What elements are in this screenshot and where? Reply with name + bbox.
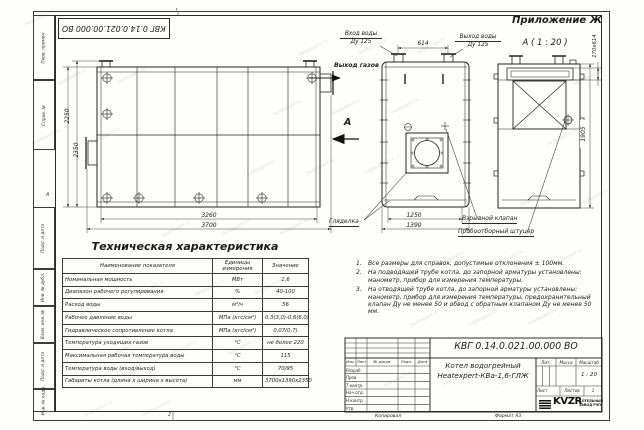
tech-cell: 0,3(3,0)-0,6(6,0) (263, 312, 309, 325)
titleblock-scale-label: Масштаб (576, 360, 602, 365)
tech-cell: МПа (кгс/см²) (213, 312, 263, 325)
note-text: На подводящей трубе котла, до запорной а… (368, 269, 602, 284)
titleblock-mass-label: Масса (556, 360, 576, 365)
margin-cell-vzam-inv: Взам. инв. № (33, 306, 55, 343)
margin-label: Подп. и дата (42, 351, 47, 380)
dim-614: 614 (412, 41, 434, 47)
gas-outlet-label: Выход газов (334, 63, 379, 70)
margin-label: Подп. и дата (42, 223, 47, 252)
note-text: Все размеры для справок, допустимые откл… (368, 260, 564, 267)
zone-mark-top: 1 (175, 9, 178, 15)
titleblock-sheets-value: 1 (584, 388, 602, 393)
tech-row: Гидравлическое сопротивление котлаМПа (к… (63, 324, 309, 337)
margin-label: Взам. инв. № (42, 310, 47, 339)
explosion-valve-label: Взрывной клапан (462, 216, 517, 224)
tech-cell: Диапазон рабочего регулирования (63, 286, 213, 299)
tech-row: Расход водым³/ч56 (63, 299, 309, 312)
tech-cell: 40-100 (263, 286, 309, 299)
notes-list: 1.Все размеры для справок, допустимые от… (356, 260, 602, 318)
tech-table-header-row: Наименование показателя Единицы измерени… (63, 259, 309, 274)
note-number: 1. (356, 260, 365, 267)
water-outlet-label: Выход воды (455, 34, 501, 42)
kvzr-logo-text: KVZR (553, 396, 582, 407)
company-name: КОТЕЛЬНЫЙ ЗАВОД РЭП (579, 399, 603, 407)
doc-number-stamp-text: КВГ 0.14.0.021.00.000 ВО (62, 24, 166, 33)
sheet-background: heatexpert.ruheatexpert.ruheatexpert.ruh… (0, 0, 644, 430)
sampling-nozzle-label: Пробоотборный штуцер (458, 229, 534, 237)
tech-cell: Расход воды (63, 299, 213, 312)
tech-cell: МВт (213, 274, 263, 287)
water-inlet-label: Вход воды (340, 31, 382, 39)
tech-cell: Температура уходящих газов (63, 337, 213, 350)
dim-2350: 2350 (73, 136, 81, 164)
titleblock-row-prov: Пров. (346, 375, 358, 380)
note-item: 1.Все размеры для справок, допустимые от… (356, 260, 602, 267)
tech-col-value: Значение (263, 259, 309, 274)
titleblock-row-razrab: Разраб. (346, 368, 362, 373)
tech-cell: Рабочее давление воды (63, 312, 213, 325)
footer-format-label: Формат А3 (495, 414, 521, 419)
dim-3260: 3260 (189, 213, 229, 220)
margin-label: Справ. № (42, 105, 47, 126)
tech-cell: Габариты котла (длина х ширина х высота) (63, 375, 213, 388)
tech-cell: °С (213, 362, 263, 375)
tech-cell: мм (213, 375, 263, 388)
water-inlet-dn: Ду 125 (340, 39, 382, 45)
tech-cell: 115 (263, 350, 309, 363)
margin-label: Инв. № дубл. (42, 273, 47, 302)
dim-2250: 2250 (64, 102, 72, 130)
note-item: 2.На подводящей трубе котла, до запорной… (356, 269, 602, 284)
titleblock-col-data: Дата (415, 360, 430, 364)
note-text: На отводящей трубе котла, до запорной ар… (368, 286, 602, 316)
tech-cell: 0,07(0,7) (263, 324, 309, 337)
margin-zone-letter: А (46, 193, 49, 199)
tech-row: Температура воды (вход/выход)°С70/95 (63, 362, 309, 375)
margin-label: Перв. примен. (42, 31, 47, 63)
tech-cell: МПа (кгс/см²) (213, 324, 263, 337)
margin-cell-sprav-no: Справ. № (33, 80, 55, 150)
margin-cell-podp-data-2: Подп. и дата (33, 343, 55, 389)
tech-row: Номинальная мощностьМВт1,6 (63, 274, 309, 287)
tech-cell: Гидравлическое сопротивление котла (63, 324, 213, 337)
titleblock-lit-label: Лит. (536, 360, 556, 365)
titleblock-col-izm: Изм. (346, 360, 356, 364)
note-number: 2. (356, 269, 365, 284)
tech-cell: % (213, 286, 263, 299)
tech-col-name: Наименование показателя (63, 259, 213, 274)
margin-cell-podp-data-1: Подп. и дата (33, 207, 55, 269)
kvzr-logo-icon (539, 399, 551, 409)
titleblock-sheet-label: Лист (537, 388, 559, 393)
tech-row: Диапазон рабочего регулирования%40-100 (63, 286, 309, 299)
tech-row: Максимальная рабочая температура воды°С1… (63, 350, 309, 363)
titleblock-col-list: Лист (356, 360, 367, 364)
tech-cell: 56 (263, 299, 309, 312)
titleblock-product-name-2: Heatexpert-КВа-1,6-ГЛЖ (430, 371, 536, 380)
drawing-sheet: { "sheet": { "appendix": "Приложение Ж",… (0, 0, 644, 430)
dim-1905: 1905 (580, 120, 588, 148)
tech-cell: Номинальная мощность (63, 274, 213, 287)
footer-copy-label: Копировал (375, 414, 401, 419)
titleblock-product-name-1: Котел водогрейный (430, 361, 536, 370)
tech-cell: 3700х1390х2350 (263, 375, 309, 388)
note-number: 3. (356, 286, 365, 316)
tech-row: Температура уходящих газов°Сне более 220 (63, 337, 309, 350)
titleblock-scale-value: 1 : 20 (576, 372, 602, 378)
titleblock-row-nachotd: Нач.отд. (346, 390, 364, 395)
titleblock-row-nkontr: Н.контр. (346, 398, 364, 403)
tech-cell: Температура воды (вход/выход) (63, 362, 213, 375)
section-view-title: А ( 1 : 20 ) (515, 39, 575, 48)
tech-col-units: Единицы измерения (213, 259, 263, 274)
tech-cell: м³/ч (213, 299, 263, 312)
tech-table-title: Техническая характеристика (62, 241, 308, 253)
note-item: 3.На отводящей трубе котла, до запорной … (356, 286, 602, 316)
tech-cell: °С (213, 350, 263, 363)
margin-cell-inv-podl: Инв. № подл. (33, 389, 55, 412)
titleblock-row-tkontr: Т.контр. (346, 383, 363, 388)
water-outlet-dn: Ду 125 (455, 42, 501, 48)
appendix-title: Приложение Ж (512, 15, 602, 26)
tech-row: Габариты котла (длина х ширина х высота)… (63, 375, 309, 388)
section-arrow-letter: А (344, 118, 351, 128)
titleblock-doc-number: КВГ 0.14.0.021.00.000 ВО (430, 341, 602, 352)
tech-table: Наименование показателя Единицы измерени… (62, 258, 309, 388)
dim-flue-170x614: 170х614 (592, 28, 600, 64)
dim-1250: 1250 (402, 213, 426, 220)
margin-cell-inv-dubl: Инв. № дубл. (33, 269, 55, 306)
doc-number-stamp: КВГ 0.14.0.021.00.000 ВО (58, 18, 170, 39)
tech-cell: 1,6 (263, 274, 309, 287)
dim-1390: 1390 (402, 223, 426, 230)
company-line2: ЗАВОД РЭП (579, 403, 603, 407)
margin-label: Инв. № подл. (42, 386, 47, 416)
tech-cell: 70/95 (263, 362, 309, 375)
titleblock-sheets-label: Листов (560, 388, 584, 393)
margin-cell-perv-primen: Перв. примен. (33, 15, 55, 80)
tech-cell: не более 220 (263, 337, 309, 350)
zone-mark-bottom: 2 (168, 413, 171, 419)
tech-cell: Максимальная рабочая температура воды (63, 350, 213, 363)
titleblock-col-docum: № докум. (367, 360, 398, 364)
sight-glass-label: Гляделка (329, 219, 359, 227)
tech-row: Рабочее давление водыМПа (кгс/см²)0,3(3,… (63, 312, 309, 325)
titleblock-row-utv: Утв. (346, 406, 354, 411)
titleblock-col-podp: Подп. (398, 360, 415, 364)
tech-cell: °С (213, 337, 263, 350)
dim-3700: 3700 (189, 223, 229, 230)
